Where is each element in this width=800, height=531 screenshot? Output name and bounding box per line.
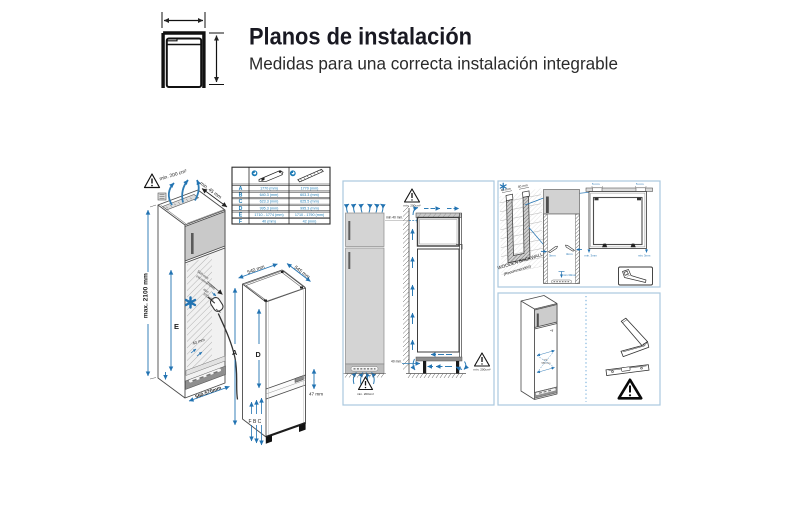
svg-text:625.5 (mm): 625.5 (mm) [300, 200, 319, 204]
svg-text:3mm: 3mm [549, 254, 556, 258]
svg-text:F: F [239, 219, 242, 225]
svg-text:min. 200cm²: min. 200cm² [357, 392, 374, 396]
svg-text:1710 - 1790 (mm): 1710 - 1790 (mm) [295, 213, 324, 217]
svg-text:C: C [239, 199, 243, 205]
svg-text:A: A [239, 186, 243, 192]
svg-text:1770 (mm): 1770 (mm) [260, 186, 278, 190]
svg-text:min 40 mm.: min 40 mm. [386, 216, 403, 220]
svg-text:min. 200cm²: min. 200cm² [473, 368, 490, 372]
svg-text:max. 2100 mm: max. 2100 mm [143, 273, 150, 318]
svg-text:540 mm: 540 mm [247, 264, 266, 276]
svg-text:603.3 (mm): 603.3 (mm) [300, 193, 319, 197]
svg-text:D: D [239, 206, 243, 212]
svg-text:40 (mm): 40 (mm) [262, 220, 276, 224]
svg-text:A: A [232, 348, 237, 357]
svg-text:5 mm: 5 mm [592, 182, 600, 186]
svg-text:550 mm: 550 mm [541, 362, 550, 365]
svg-text:623.3 (mm): 623.3 (mm) [260, 200, 279, 204]
svg-text:47 mm: 47 mm [309, 392, 323, 397]
svg-text:40 mm.: 40 mm. [391, 360, 402, 364]
svg-text:545 mm: 545 mm [293, 265, 311, 281]
svg-text:640.3 (mm): 640.3 (mm) [260, 193, 279, 197]
svg-text:B: B [239, 193, 243, 199]
svg-text:min 30mm: min 30mm [563, 273, 577, 277]
svg-text:min. 3mm: min. 3mm [638, 254, 651, 258]
svg-text:min. 3mm: min. 3mm [585, 254, 598, 258]
svg-text:995.3 (mm): 995.3 (mm) [260, 206, 279, 210]
svg-text:42 (mm): 42 (mm) [303, 220, 317, 224]
svg-text:Planos de instalación: Planos de instalación [249, 24, 472, 51]
svg-text:F B C: F B C [249, 419, 262, 425]
svg-text:995.3 (mm): 995.3 (mm) [300, 206, 319, 210]
svg-text:D: D [256, 350, 261, 359]
svg-text:min. 200 cm²: min. 200 cm² [159, 168, 188, 182]
svg-text:E: E [174, 322, 179, 331]
svg-text:E: E [239, 213, 243, 219]
svg-text:min. 200cm²: min. 200cm² [403, 204, 420, 208]
svg-text:5 mm: 5 mm [636, 182, 644, 186]
svg-text:1770 (mm): 1770 (mm) [301, 186, 319, 190]
svg-text:3mm: 3mm [566, 252, 573, 256]
svg-text:1710 - 1774 (mm): 1710 - 1774 (mm) [254, 213, 283, 217]
svg-text:Medidas para una correcta inst: Medidas para una correcta instalación in… [249, 54, 618, 74]
